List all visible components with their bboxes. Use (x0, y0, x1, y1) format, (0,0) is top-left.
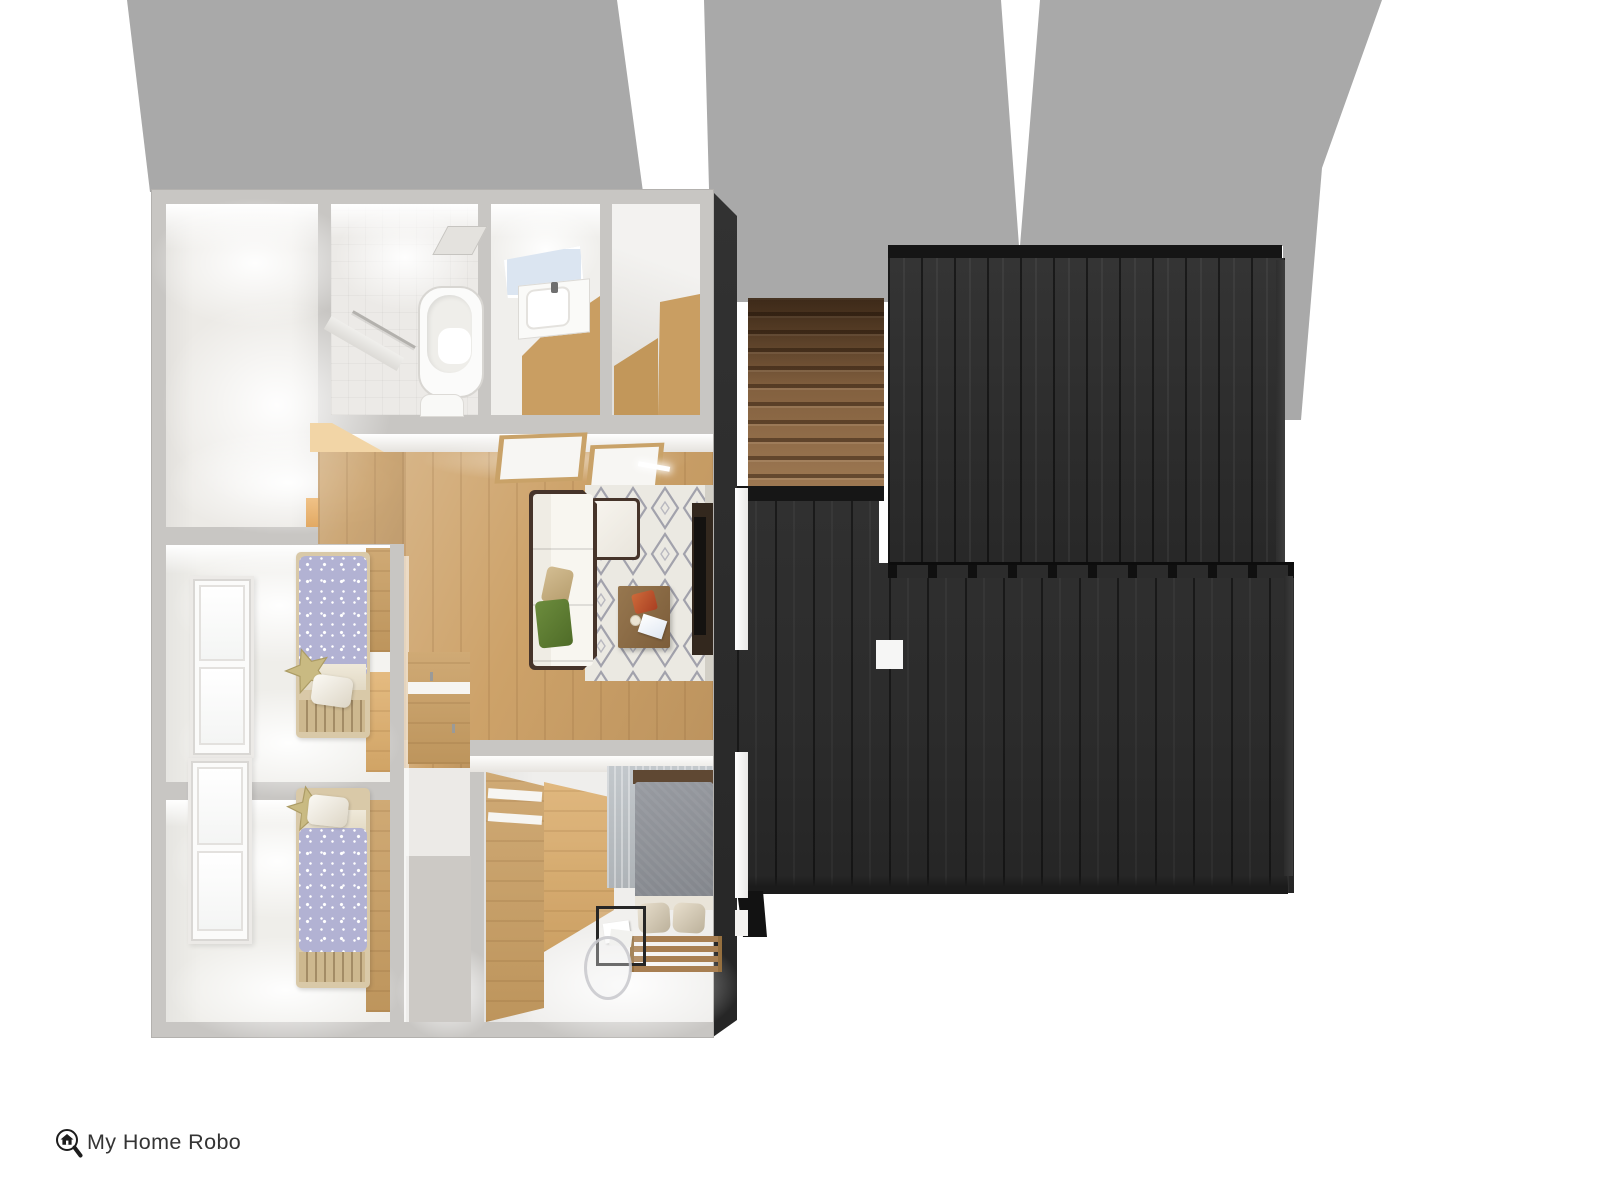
floorplan-render: My Home Robo (0, 0, 1600, 1200)
bed-b-pillow (307, 794, 350, 828)
bed-a-pillow (310, 673, 354, 708)
hall-wood-floor (318, 452, 418, 544)
window-pane (199, 585, 245, 661)
window-pane (199, 667, 245, 745)
door-frame-white-2 (735, 752, 748, 898)
house-east-wall-dark (713, 192, 737, 1037)
toilet (420, 394, 464, 417)
app-logo-text: My Home Robo (87, 1130, 241, 1155)
sink-basin (526, 286, 570, 331)
stair-landing-edge (737, 486, 884, 501)
closet-hook (452, 724, 455, 733)
staircase (748, 298, 884, 488)
roof-lower-seam-tabs (888, 562, 1294, 578)
window-bedroom-b (188, 758, 252, 944)
ghost-chair (584, 936, 632, 1000)
master-duvet (635, 782, 713, 902)
master-pillow (672, 902, 706, 934)
app-logo: My Home Robo (54, 1126, 241, 1158)
bed-b-duvet (299, 828, 367, 952)
table-decor-cup (630, 615, 641, 626)
roof-gap-notch (876, 640, 903, 669)
roof-lower-eave-band (742, 876, 1288, 894)
roof-gap-sliver (879, 497, 888, 563)
window-pane (197, 767, 243, 845)
house-magnifier-icon (54, 1126, 84, 1158)
ceiling-panel-light-1 (500, 437, 582, 480)
sofa-chaise-cushion (593, 501, 637, 557)
corridor-partition-wall (406, 856, 471, 1022)
bathtub-seat (438, 328, 471, 364)
closet-hook (430, 672, 433, 681)
window-bedroom-a (190, 576, 254, 758)
window-pane (197, 851, 243, 931)
corridor-closet-wall (408, 652, 470, 764)
closet-shelf-band-1 (408, 682, 470, 694)
throw-pillow-green (535, 598, 574, 648)
roof-lower-edge-highlight (1284, 576, 1293, 876)
room-empty (166, 204, 318, 527)
landing-wood-wall-right (658, 294, 700, 415)
roof-upper-edge-highlight (1276, 260, 1285, 562)
roof-upper-plane (888, 258, 1285, 562)
roof-upper-ridge-band (888, 245, 1282, 259)
master-closet-panel (486, 772, 544, 1022)
door-frame-white-3 (735, 910, 748, 936)
door-frame-white-1 (735, 488, 748, 650)
bed-b-footboard (299, 952, 365, 982)
sink-faucet (551, 282, 558, 293)
tv-screen (694, 517, 706, 635)
